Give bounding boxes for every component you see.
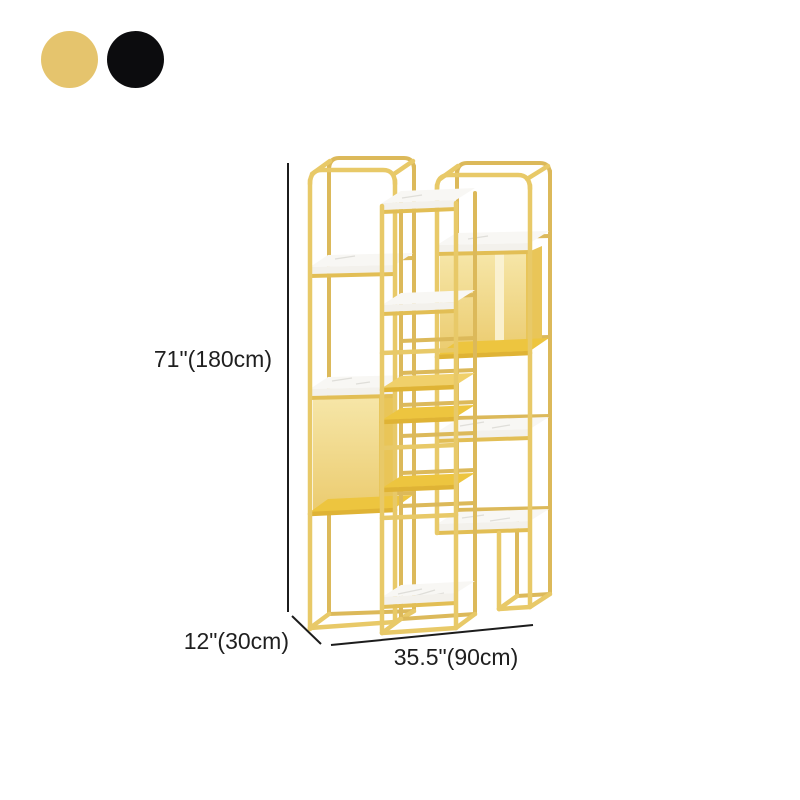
color-swatch-gold[interactable] — [41, 31, 98, 88]
color-swatch-row — [41, 31, 164, 88]
height-dimension-label: 71"(180cm) — [154, 346, 272, 372]
frame-rung — [382, 350, 456, 353]
marble-shelf — [310, 253, 413, 276]
depth-dimension-line — [292, 616, 321, 644]
color-swatch-black[interactable] — [107, 31, 164, 88]
depth-dimension-label: 12"(30cm) — [184, 628, 289, 654]
left-tower-frame — [310, 158, 414, 629]
frame-rung — [382, 515, 456, 518]
frame-rung — [382, 445, 456, 448]
product-image-canvas: 71"(180cm) 12"(30cm) 35.5"(90cm) — [0, 0, 800, 800]
width-dimension-label: 35.5"(90cm) — [394, 644, 519, 670]
shelf-unit — [310, 158, 550, 633]
product-illustration: 71"(180cm) 12"(30cm) 35.5"(90cm) — [0, 0, 800, 800]
